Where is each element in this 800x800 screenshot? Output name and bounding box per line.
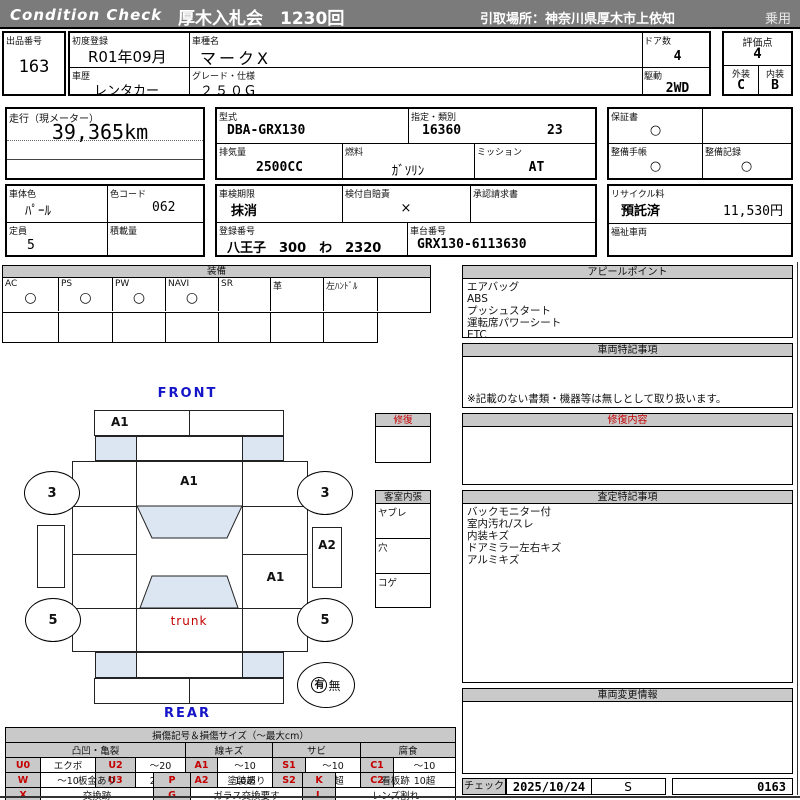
special-notes-title: 車両特記事項	[463, 344, 792, 357]
equipment-extra-cell	[271, 313, 324, 342]
spare-tire-indicator: 有無	[297, 662, 355, 708]
rear-bumper	[94, 678, 284, 704]
score-box: 評価点 4 外装 C 内装 B	[722, 31, 793, 96]
appeal-line: プッシュスタート	[467, 305, 788, 317]
body-color-label: 車体色	[9, 187, 36, 200]
reg-no-value: 八王子 300 わ 2320	[227, 237, 381, 256]
rocker-right-damage-mark: A2	[313, 538, 341, 552]
check-date: 2025/10/24	[507, 780, 591, 794]
interior-trim-row-hole: 穴	[376, 539, 430, 574]
legend-group-rust: サビ	[273, 743, 361, 758]
history-value: レンタカー	[94, 80, 159, 99]
special-notes-panel: 車両特記事項 ※記載のない書類・機器等は無しとして取り扱います。	[462, 343, 793, 408]
score-value: 4	[724, 46, 791, 62]
warranty-value: ○	[609, 123, 702, 138]
appeal-line: エアバッグ	[467, 281, 788, 293]
appeal-line: ABS	[467, 293, 788, 305]
equipment-cell-ps: PS○	[59, 278, 113, 311]
reg-no-label: 登録番号	[219, 224, 255, 237]
appeal-line: 運転席パワーシート	[467, 317, 788, 329]
doors-label: ドア数	[644, 34, 671, 47]
divider	[107, 186, 108, 255]
check-number-box: 0163	[672, 778, 793, 795]
trunk-label: trunk	[136, 614, 242, 628]
repair-content-panel: 修復内容	[462, 413, 793, 485]
check-label-cell: チェック	[462, 778, 506, 795]
taillight-left	[95, 652, 137, 678]
type-value: DBA-GRX130	[227, 123, 305, 138]
repair-flag-title: 修復	[376, 414, 430, 427]
equipment-extra-cell	[59, 313, 113, 342]
legend-group-dent: 凸凹・亀裂	[6, 743, 186, 758]
front-panel	[136, 436, 243, 461]
rocker-left	[37, 525, 65, 588]
front-bumper-damage-mark: A1	[111, 415, 129, 429]
maintenance-record-value: ○	[702, 159, 791, 174]
equipment-extra-row	[2, 312, 378, 343]
color-code-label: 色コード	[110, 187, 146, 200]
equipment-cell-ac: AC○	[3, 278, 59, 311]
fuel-label: 燃料	[345, 145, 363, 158]
divider	[7, 222, 203, 223]
check-inspector: S	[591, 780, 665, 794]
displacement-value: 2500CC	[217, 160, 342, 175]
approval-label: 承認請求書	[473, 187, 518, 200]
fuel-value: ｶﾞｿﾘﾝ	[342, 160, 474, 179]
assessment-line: 内装キズ	[467, 530, 788, 542]
assessment-title: 査定特記事項	[463, 491, 792, 504]
inspection-value: 抹消	[231, 200, 257, 219]
equipment-cell-leather: 革	[271, 278, 324, 311]
equipment-title: 装備	[3, 266, 430, 278]
color-code-value: 062	[152, 200, 175, 215]
assessment-line: アルミキズ	[467, 554, 788, 566]
equipment-extra-cell	[324, 313, 377, 342]
interior-trim-title: 客室内張	[376, 491, 430, 504]
jibaiseki-label: 検付自賠責	[345, 187, 390, 200]
lot-number-value: 163	[4, 57, 64, 77]
capacity-label: 定員	[9, 224, 27, 237]
equipment-extra-cell	[219, 313, 271, 342]
repair-content-title: 修復内容	[463, 414, 792, 427]
recycle-label: リサイクル料	[611, 187, 665, 200]
maintenance-book-label: 整備手帳	[611, 145, 647, 158]
drive-value: 2WD	[642, 81, 713, 96]
equipment-cell-pw: PW○	[113, 278, 166, 311]
mission-label: ミッション	[477, 145, 522, 158]
divider	[609, 223, 791, 224]
assessment-line: 室内汚れ/スレ	[467, 518, 788, 530]
equipment-extra-cell	[3, 313, 59, 342]
car-body: A1 A1 trunk	[72, 461, 308, 652]
recycle-fee: 11,530円	[723, 200, 783, 219]
title-bar: Condition Check 厚木入札会 1230回 引取場所：神奈川県厚木市…	[0, 0, 800, 29]
brand-logo: Condition Check	[10, 6, 162, 24]
divider	[70, 67, 709, 68]
type-label: 型式	[219, 110, 237, 123]
divider	[408, 109, 409, 143]
corner-front-left: 3	[24, 471, 80, 515]
divider	[217, 143, 595, 144]
appeal-panel: アピールポイント エアバッグ ABS プッシュスタート 運転席パワーシート ET…	[462, 265, 793, 338]
change-info-panel: 車両変更情報	[462, 688, 793, 774]
headlight-left	[95, 436, 137, 461]
mission-value: AT	[474, 160, 599, 175]
auction-sheet: Condition Check 厚木入札会 1230回 引取場所：神奈川県厚木市…	[0, 0, 800, 800]
divider	[217, 222, 595, 223]
hood-damage-mark: A1	[136, 474, 242, 488]
equipment-cell-navi: NAVI○	[166, 278, 219, 311]
diagram-front-label: FRONT	[130, 386, 245, 401]
interior-trim-box: 客室内張 ヤブレ 穴 コゲ	[375, 490, 431, 608]
rear-panel	[136, 652, 243, 678]
jibaiseki-value: ×	[342, 201, 470, 216]
appeal-line: ETC	[467, 329, 788, 341]
model-value: マークX	[200, 45, 271, 69]
first-reg-value: R01年09月	[88, 46, 167, 67]
grade-value: ２５０G	[200, 80, 257, 99]
rear-door-right-damage-mark: A1	[242, 570, 309, 584]
equipment-extra-cell	[113, 313, 166, 342]
check-number: 0163	[757, 780, 786, 794]
equipment-table: 装備 AC○ PS○ PW○ NAVI○ SR 革 左ﾊﾝﾄﾞﾙ	[2, 265, 431, 313]
equipment-row: AC○ PS○ PW○ NAVI○ SR 革 左ﾊﾝﾄﾞﾙ	[3, 278, 430, 311]
class-value-1: 16360	[422, 123, 461, 138]
diagram-rear-label: REAR	[130, 706, 245, 721]
chassis-label: 車台番号	[410, 224, 446, 237]
lot-number-label: 出品番号	[6, 34, 42, 47]
spare-yes-circled: 有	[311, 677, 327, 693]
assessment-line: バックモニター付	[467, 506, 788, 518]
legend-group-corrosion: 腐食	[361, 743, 456, 758]
front-bumper: A1	[94, 410, 284, 436]
page-edge-line	[797, 262, 798, 795]
spare-no: 無	[328, 677, 340, 694]
legend-title: 損傷記号＆損傷サイズ（～最大cm）	[6, 728, 456, 743]
type-box: 型式 DBA-GRX130 指定・類別 16360 23 排気量 2500CC …	[215, 107, 597, 180]
divider	[189, 33, 190, 94]
color-box: 車体色 ﾊﾟｰﾙ 色コード 062 定員 5 積載量	[5, 184, 205, 257]
interior-trim-row-burn: コゲ	[376, 574, 430, 607]
corner-rear-right: 5	[297, 598, 353, 642]
chassis-value: GRX130-6113630	[417, 237, 527, 252]
divider	[189, 411, 190, 435]
corner-rear-left: 5	[25, 598, 81, 642]
load-label: 積載量	[110, 224, 137, 237]
recycle-status: 預託済	[621, 200, 660, 219]
appeal-title: アピールポイント	[463, 266, 792, 279]
warranty-label: 保証書	[611, 110, 638, 123]
recycle-box: リサイクル料 預託済 11,530円 福祉車両	[607, 184, 793, 257]
equipment-extra-cell	[166, 313, 219, 342]
divider	[407, 222, 408, 255]
lot-number-box: 出品番号 163	[2, 31, 66, 96]
equipment-cell-blank	[378, 278, 430, 311]
mileage-box: 走行（現メーター） 39,365km	[5, 107, 205, 180]
check-date-box: 2025/10/24 S	[506, 778, 666, 795]
windshield	[137, 506, 242, 538]
displacement-label: 排気量	[219, 145, 246, 158]
change-info-title: 車両変更情報	[463, 689, 792, 702]
vehicle-main-box: 初度登録 R01年09月 車種名 マークX ドア数 4 車歴 レンタカー グレー…	[68, 31, 711, 96]
maintenance-record-label: 整備記録	[705, 145, 741, 158]
doors-value: 4	[642, 49, 713, 64]
class-value-2: 23	[547, 123, 563, 138]
legend-group-scratch: 線キズ	[186, 743, 273, 758]
repair-flag-box: 修復	[375, 413, 431, 463]
interior-trim-row-tear: ヤブレ	[376, 504, 430, 539]
divider	[7, 159, 203, 160]
divider	[189, 679, 190, 703]
divider	[609, 143, 791, 144]
body-color-value: ﾊﾟｰﾙ	[25, 200, 51, 219]
inspection-label: 車検期限	[219, 187, 255, 200]
equipment-cell-sr: SR	[219, 278, 271, 311]
taillight-right	[242, 652, 284, 678]
history-label: 車歴	[72, 69, 90, 82]
class-label: 指定・類別	[411, 110, 456, 123]
corner-front-right: 3	[297, 471, 353, 515]
rear-window	[140, 576, 238, 608]
special-notes-disclaimer: ※記載のない書類・機器等は無しとして取り扱います。	[467, 393, 726, 405]
headlight-right	[242, 436, 284, 461]
documents-box: 保証書 ○ 整備手帳 ○ 整備記録 ○	[607, 107, 793, 180]
auction-title: 厚木入札会 1230回	[178, 4, 344, 29]
pickup-location: 引取場所：神奈川県厚木市上依知	[480, 8, 675, 27]
divider	[7, 140, 203, 141]
assessment-line: ドアミラー左右キズ	[467, 542, 788, 554]
assessment-panel: 査定特記事項 バックモニター付 室内汚れ/スレ 内装キズ ドアミラー左右キズ ア…	[462, 490, 793, 683]
divider	[470, 186, 471, 222]
registration-box: 車検期限 抹消 検付自賠責 × 承認請求書 登録番号 八王子 300 わ 232…	[215, 184, 597, 257]
exterior-value: C	[724, 78, 758, 93]
rocker-right: A2	[312, 527, 342, 588]
equipment-cell-lhd: 左ﾊﾝﾄﾞﾙ	[324, 278, 378, 311]
interior-value: B	[759, 78, 791, 93]
welfare-label: 福祉車両	[611, 225, 647, 238]
vehicle-category: 乗用	[765, 8, 791, 27]
page-bottom-line	[0, 796, 800, 798]
capacity-value: 5	[27, 238, 35, 253]
maintenance-book-value: ○	[609, 159, 702, 174]
